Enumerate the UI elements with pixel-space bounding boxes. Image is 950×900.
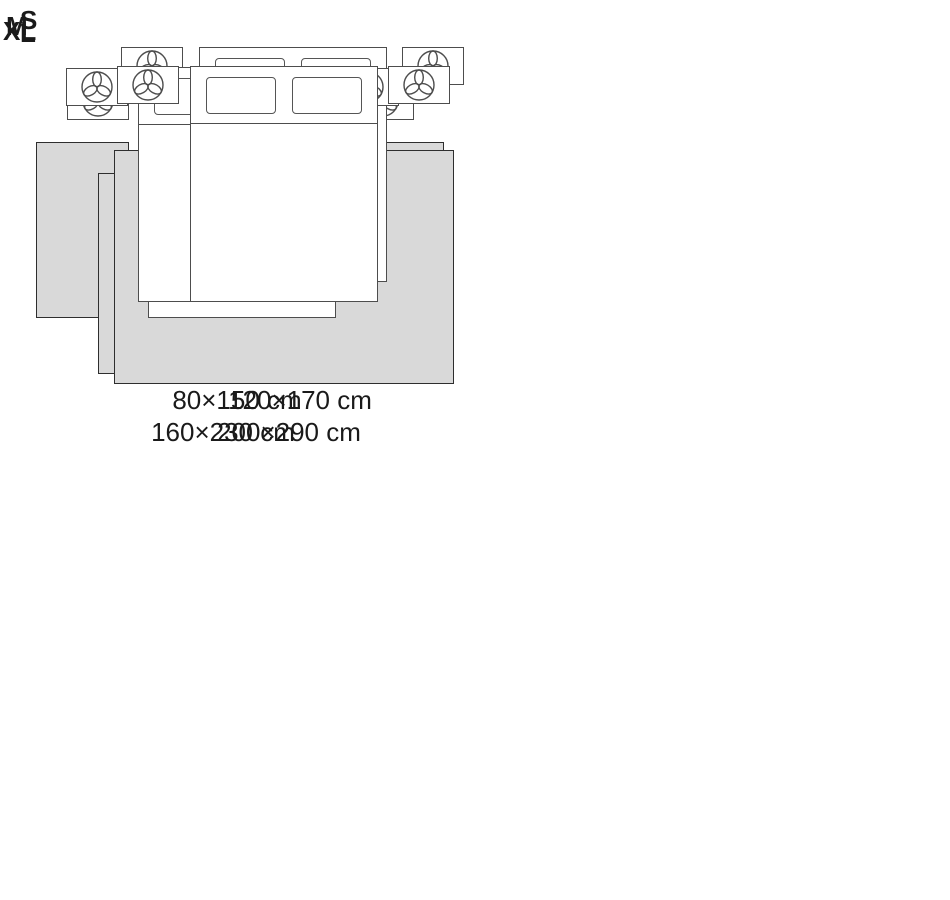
pillow-right bbox=[292, 77, 362, 114]
headboard-divider bbox=[191, 123, 377, 124]
pillow-left bbox=[206, 77, 276, 114]
plant-icon bbox=[394, 67, 444, 103]
plant-icon bbox=[123, 67, 173, 103]
rug-size-guide: S bbox=[0, 0, 950, 900]
size-label-xl: XL bbox=[3, 18, 36, 44]
size-dimensions-xl: 200×290 cm bbox=[179, 417, 399, 448]
plant-icon bbox=[72, 69, 122, 105]
nightstand-left bbox=[117, 66, 179, 104]
bed bbox=[190, 66, 378, 302]
nightstand-right bbox=[388, 66, 450, 104]
